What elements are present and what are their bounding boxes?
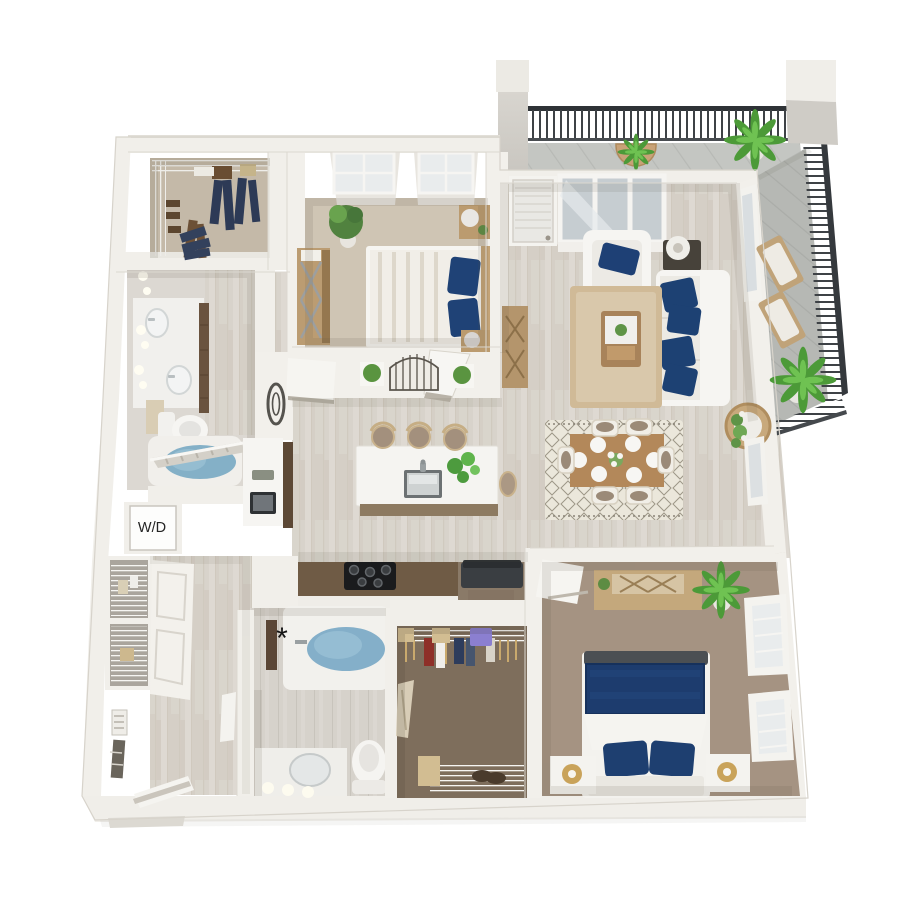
svg-text:W/D: W/D [138, 520, 166, 536]
svg-text:*: * [276, 622, 288, 655]
